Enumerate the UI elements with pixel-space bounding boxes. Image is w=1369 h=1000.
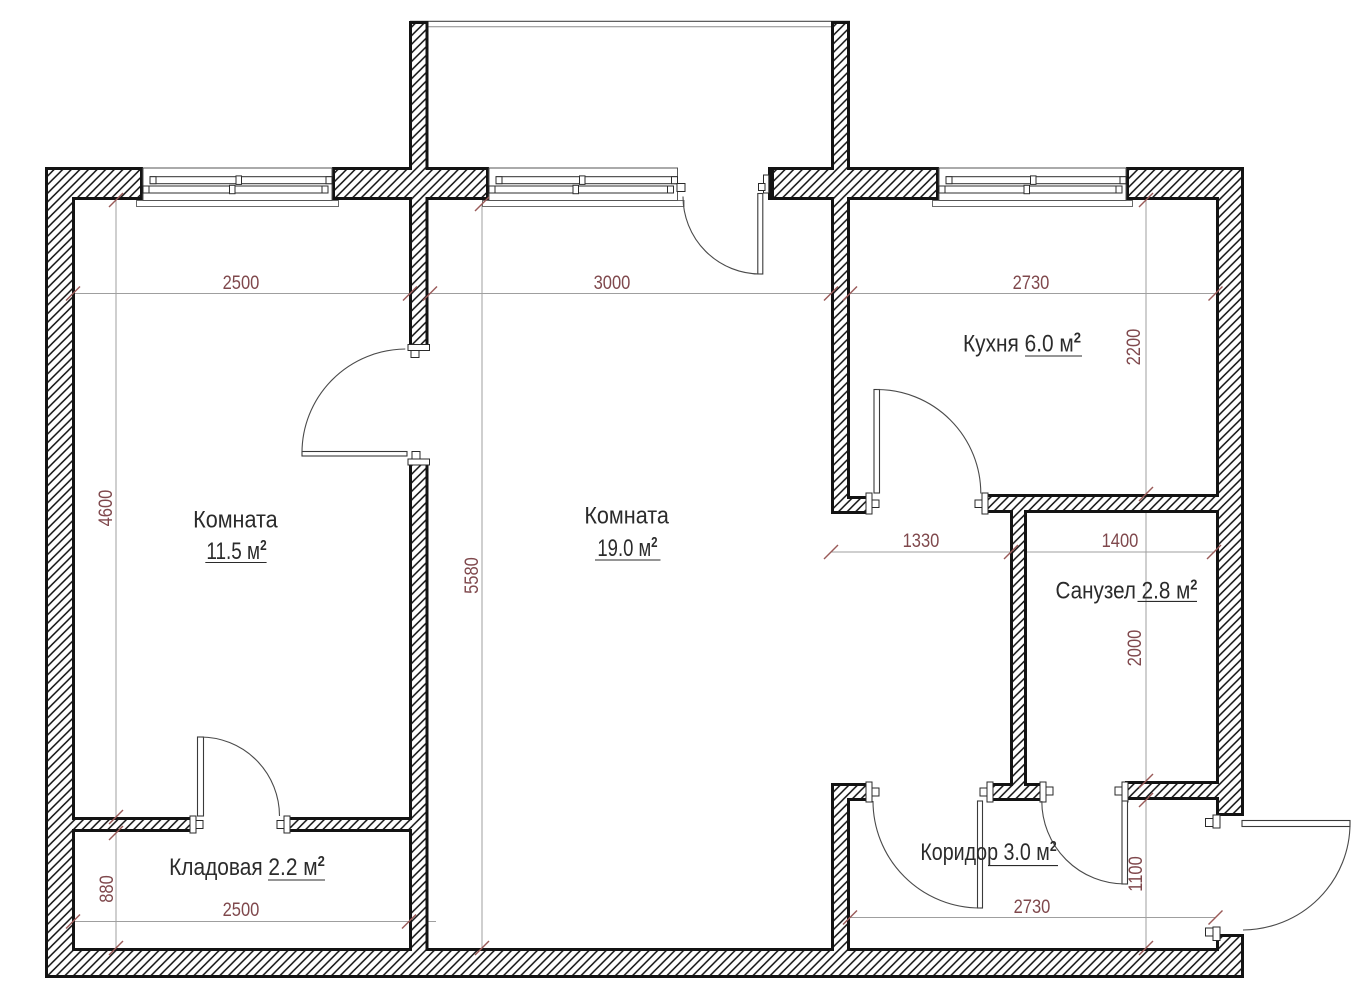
svg-text:Комната: Комната [193, 505, 278, 532]
svg-text:19.0 м2: 19.0 м2 [597, 534, 657, 562]
svg-text:Кухня 6.0 м2: Кухня 6.0 м2 [963, 329, 1081, 357]
svg-text:1330: 1330 [903, 530, 940, 551]
svg-text:2500: 2500 [223, 899, 260, 920]
svg-text:2500: 2500 [223, 272, 260, 293]
svg-text:3000: 3000 [594, 272, 631, 293]
svg-text:1100: 1100 [1125, 856, 1146, 892]
svg-text:5580: 5580 [461, 557, 482, 594]
svg-text:1400: 1400 [1102, 530, 1139, 551]
svg-text:2000: 2000 [1124, 630, 1145, 667]
svg-text:2730: 2730 [1014, 896, 1051, 917]
svg-text:2200: 2200 [1123, 329, 1144, 366]
svg-text:Комната: Комната [584, 501, 669, 528]
svg-text:Коридор 3.0 м2: Коридор 3.0 м2 [920, 838, 1057, 866]
svg-text:4600: 4600 [95, 490, 116, 527]
svg-text:2730: 2730 [1013, 272, 1050, 293]
svg-text:880: 880 [96, 875, 117, 903]
svg-text:Кладовая 2.2 м2: Кладовая 2.2 м2 [169, 852, 325, 880]
svg-text:11.5 м2: 11.5 м2 [206, 537, 266, 565]
svg-text:Санузел 2.8 м2: Санузел 2.8 м2 [1056, 575, 1198, 603]
